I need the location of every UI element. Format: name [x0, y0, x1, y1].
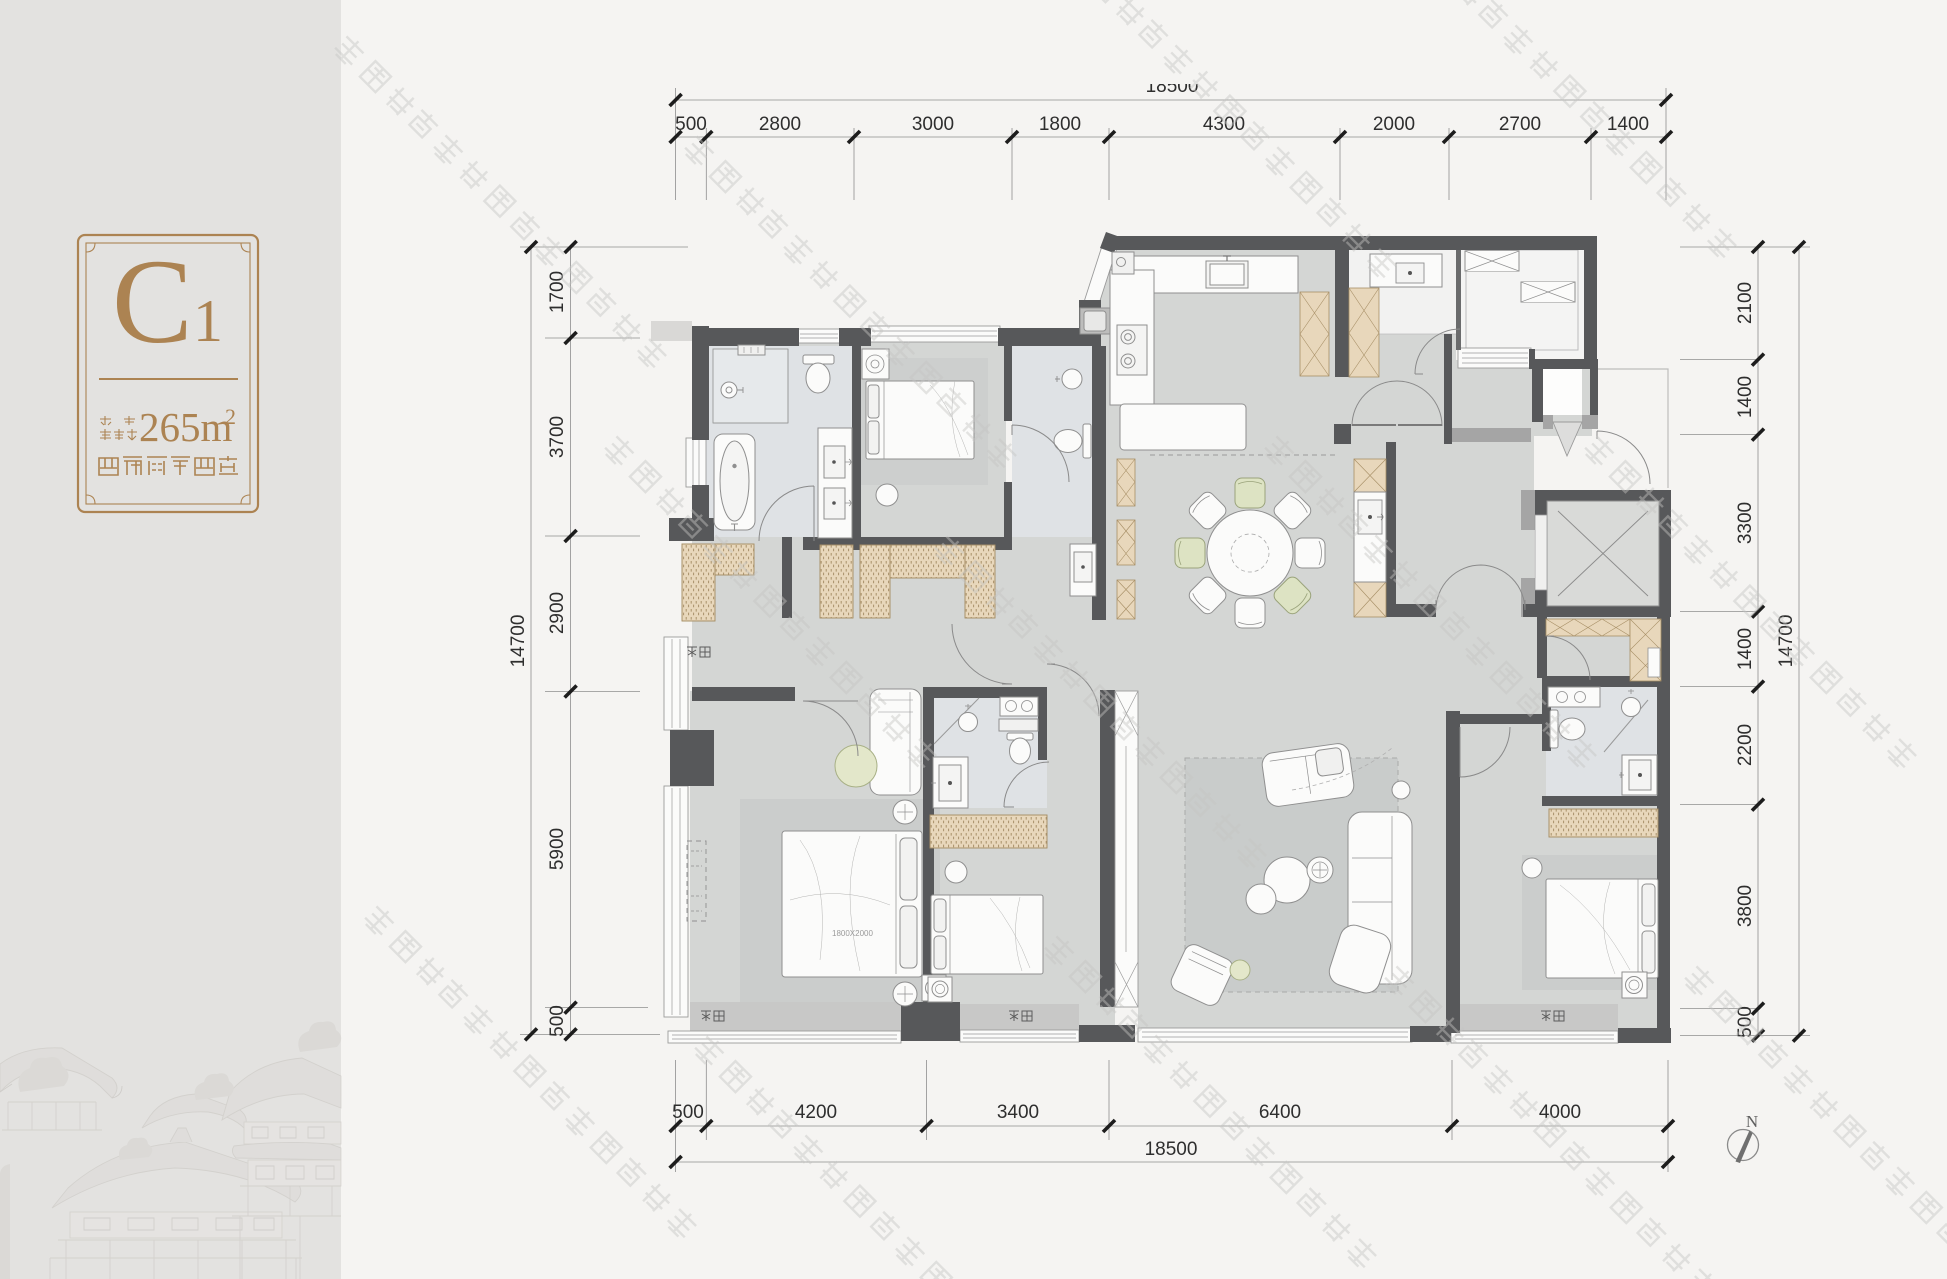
svg-text:2000: 2000 [1373, 114, 1415, 135]
svg-text:2100: 2100 [1735, 282, 1756, 324]
svg-text:500: 500 [547, 1005, 568, 1037]
svg-text:2: 2 [225, 404, 236, 429]
svg-text:2200: 2200 [1735, 724, 1756, 766]
svg-text:4200: 4200 [795, 1102, 837, 1123]
svg-text:1: 1 [193, 288, 223, 354]
svg-text:1700: 1700 [547, 271, 568, 313]
svg-text:3700: 3700 [547, 416, 568, 458]
svg-text:2700: 2700 [1499, 114, 1541, 135]
svg-text:14700: 14700 [508, 615, 529, 668]
svg-text:3000: 3000 [912, 114, 954, 135]
svg-text:1400: 1400 [1735, 376, 1756, 418]
svg-text:N: N [1746, 1112, 1758, 1131]
svg-text:1800: 1800 [1039, 114, 1081, 135]
svg-text:1400: 1400 [1735, 628, 1756, 670]
svg-text:18500: 18500 [1145, 1139, 1198, 1160]
svg-text:6400: 6400 [1259, 1102, 1301, 1123]
svg-text:1800X2000: 1800X2000 [832, 929, 873, 938]
svg-text:3800: 3800 [1735, 885, 1756, 927]
svg-text:2800: 2800 [759, 114, 801, 135]
svg-text:5900: 5900 [547, 828, 568, 870]
svg-text:2900: 2900 [547, 592, 568, 634]
svg-text:C: C [112, 235, 193, 369]
svg-text:500: 500 [675, 114, 707, 135]
svg-text:500: 500 [672, 1102, 704, 1123]
svg-text:3300: 3300 [1735, 502, 1756, 544]
svg-text:265m: 265m [139, 404, 233, 450]
svg-text:3400: 3400 [997, 1102, 1039, 1123]
